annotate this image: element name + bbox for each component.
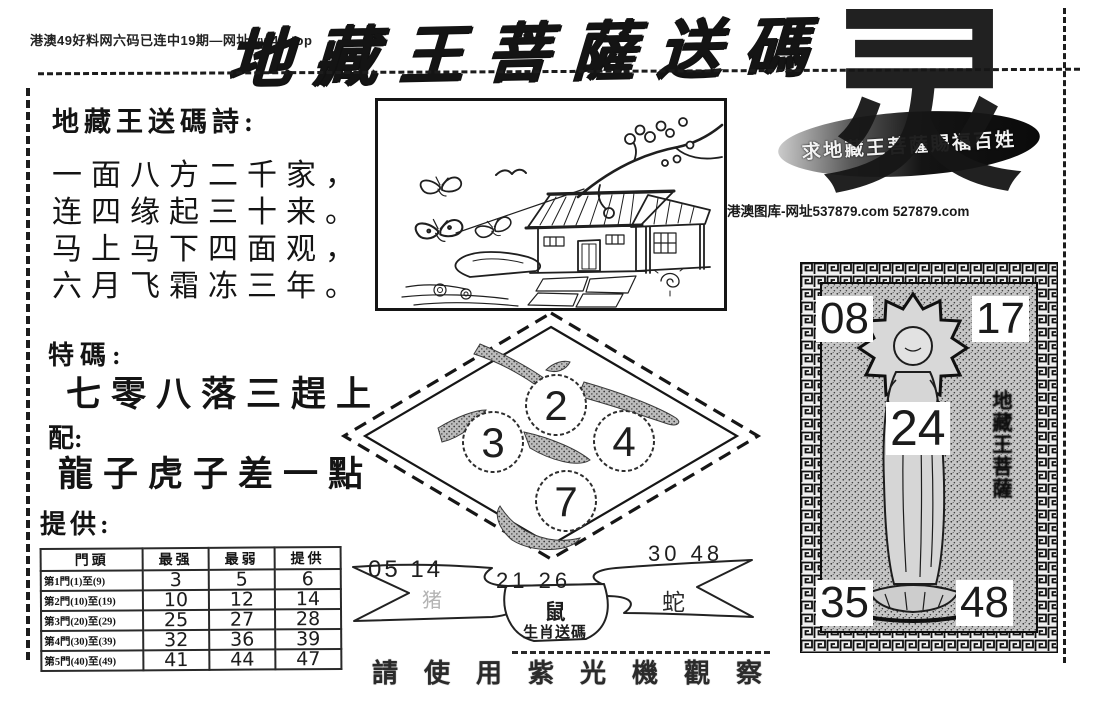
divider-dashed-right [1063, 8, 1066, 663]
table-cell: 41 [143, 650, 209, 670]
table-cell: 12 [209, 589, 275, 609]
panel-number-bottom-left: 35 [816, 580, 873, 626]
diamond-number: 2 [544, 382, 567, 429]
table-cell: 28 [275, 609, 341, 629]
table-cell: 6 [275, 569, 341, 589]
table-header-cell: 最弱 [209, 547, 275, 569]
uv-instruction: 請使用紫光機觀察 [372, 653, 788, 690]
tip-sheet-page: 港澳49好料网六码已连中19期—网址ww49.top 地藏王菩薩送碼 地藏王送碼… [0, 0, 1099, 704]
banner-right-zodiac: 蛇 [662, 590, 685, 615]
panel-number-bottom-right: 48 [956, 580, 1013, 626]
panel-number-top-right: 17 [972, 296, 1029, 342]
table-cell: 14 [275, 589, 341, 609]
ling-calligraphy-character: 灵 [822, 6, 1022, 206]
table-cell: 3 [143, 570, 209, 590]
table-header-cell: 門頭 [41, 548, 143, 571]
panel-number-top-left: 08 [816, 296, 873, 342]
table-cell: 5 [209, 569, 275, 589]
banner-center-zodiac: 鼠 [545, 600, 566, 624]
table-header-cell: 提供 [275, 547, 341, 569]
poem-block: 地藏王送碼詩: 一面八方二千家， 连四缘起三十来。 马上马下四面观， 六月飞霜冻… [52, 100, 364, 305]
house-illustration-art [378, 101, 724, 308]
house-illustration [375, 98, 727, 311]
panel-side-label: 地藏王菩薩 [986, 390, 1015, 540]
table-row: 第5門(40)至(49) 41 44 47 [41, 649, 341, 671]
provide-label: 提供: [40, 504, 113, 541]
table-cell: 25 [143, 610, 209, 630]
table-cell: 47 [275, 649, 341, 669]
banner-center-numbers: 21 26 [496, 568, 571, 594]
table-cell: 32 [143, 630, 209, 650]
deity-panel: 08 17 24 35 48 地藏王菩薩 [800, 262, 1058, 653]
panel-number-center: 24 [886, 402, 950, 455]
diamond-numbers-graphic: 2 3 4 7 [338, 310, 764, 562]
banner-left-zodiac: 猪 [422, 589, 442, 612]
table-cell: 44 [209, 649, 275, 669]
divider-dashed-left [26, 88, 30, 660]
table-cell: 36 [209, 629, 275, 649]
banner-left-numbers: 05 14 [368, 556, 443, 584]
table-cell-door: 第1門(1)至(9) [41, 570, 143, 591]
poem-line: 马上马下四面观， [52, 231, 364, 268]
banner-caption: 生肖送碼 [523, 623, 587, 641]
table-header-cell: 最强 [143, 548, 209, 570]
diamond-number: 3 [481, 419, 504, 466]
special-code-phrase: 七零八落三趕上 [66, 366, 381, 417]
poem-line: 一面八方二千家， [52, 157, 364, 194]
table-cell: 39 [275, 629, 341, 649]
door-table: 門頭 最强 最弱 提供 第1門(1)至(9) 3 5 6 第2門(10)至(19… [40, 546, 343, 672]
poem-line: 六月飞霜冻三年。 [52, 268, 364, 305]
table-cell: 10 [143, 590, 209, 610]
diamond-number: 7 [554, 478, 577, 525]
page-title: 地藏王菩薩送碼 [226, 0, 832, 100]
table-cell-door: 第2門(10)至(19) [41, 590, 143, 611]
table-header-row: 門頭 最强 最弱 提供 [41, 547, 341, 571]
table-cell: 27 [209, 609, 275, 629]
banner-right-numbers: 30 48 [648, 541, 723, 567]
pair-phrase: 龍子虎子差一點 [58, 446, 373, 497]
diamond-number: 4 [612, 418, 635, 465]
poem-line: 连四缘起三十来。 [52, 194, 364, 231]
poem-heading: 地藏王送碼詩: [52, 100, 364, 139]
table-cell-door: 第3門(20)至(29) [41, 610, 143, 631]
table-cell-door: 第4門(30)至(39) [41, 630, 143, 651]
table-cell-door: 第5門(40)至(49) [41, 650, 143, 671]
